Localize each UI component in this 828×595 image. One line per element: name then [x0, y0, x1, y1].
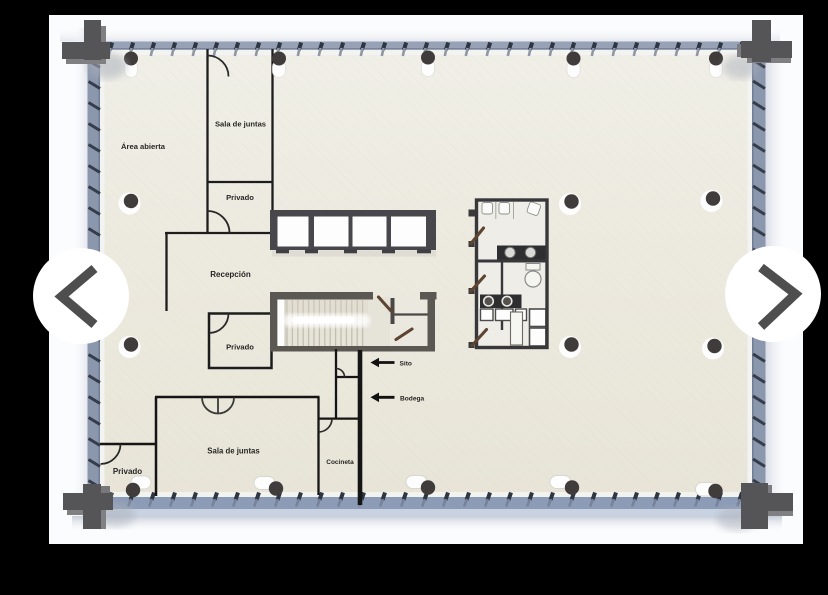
svg-text:Bodega: Bodega: [400, 395, 425, 402]
svg-text:Sala de juntas: Sala de juntas: [215, 120, 266, 129]
svg-text:Cocineta: Cocineta: [326, 459, 354, 466]
svg-text:Sala de juntas: Sala de juntas: [207, 446, 260, 455]
svg-text:Área abierta: Área abierta: [121, 142, 166, 151]
svg-text:Recepción: Recepción: [210, 270, 251, 279]
svg-text:Privado: Privado: [226, 193, 254, 202]
svg-text:Privado: Privado: [226, 343, 254, 352]
svg-text:Privado: Privado: [113, 467, 142, 476]
svg-text:Sito: Sito: [400, 361, 412, 368]
